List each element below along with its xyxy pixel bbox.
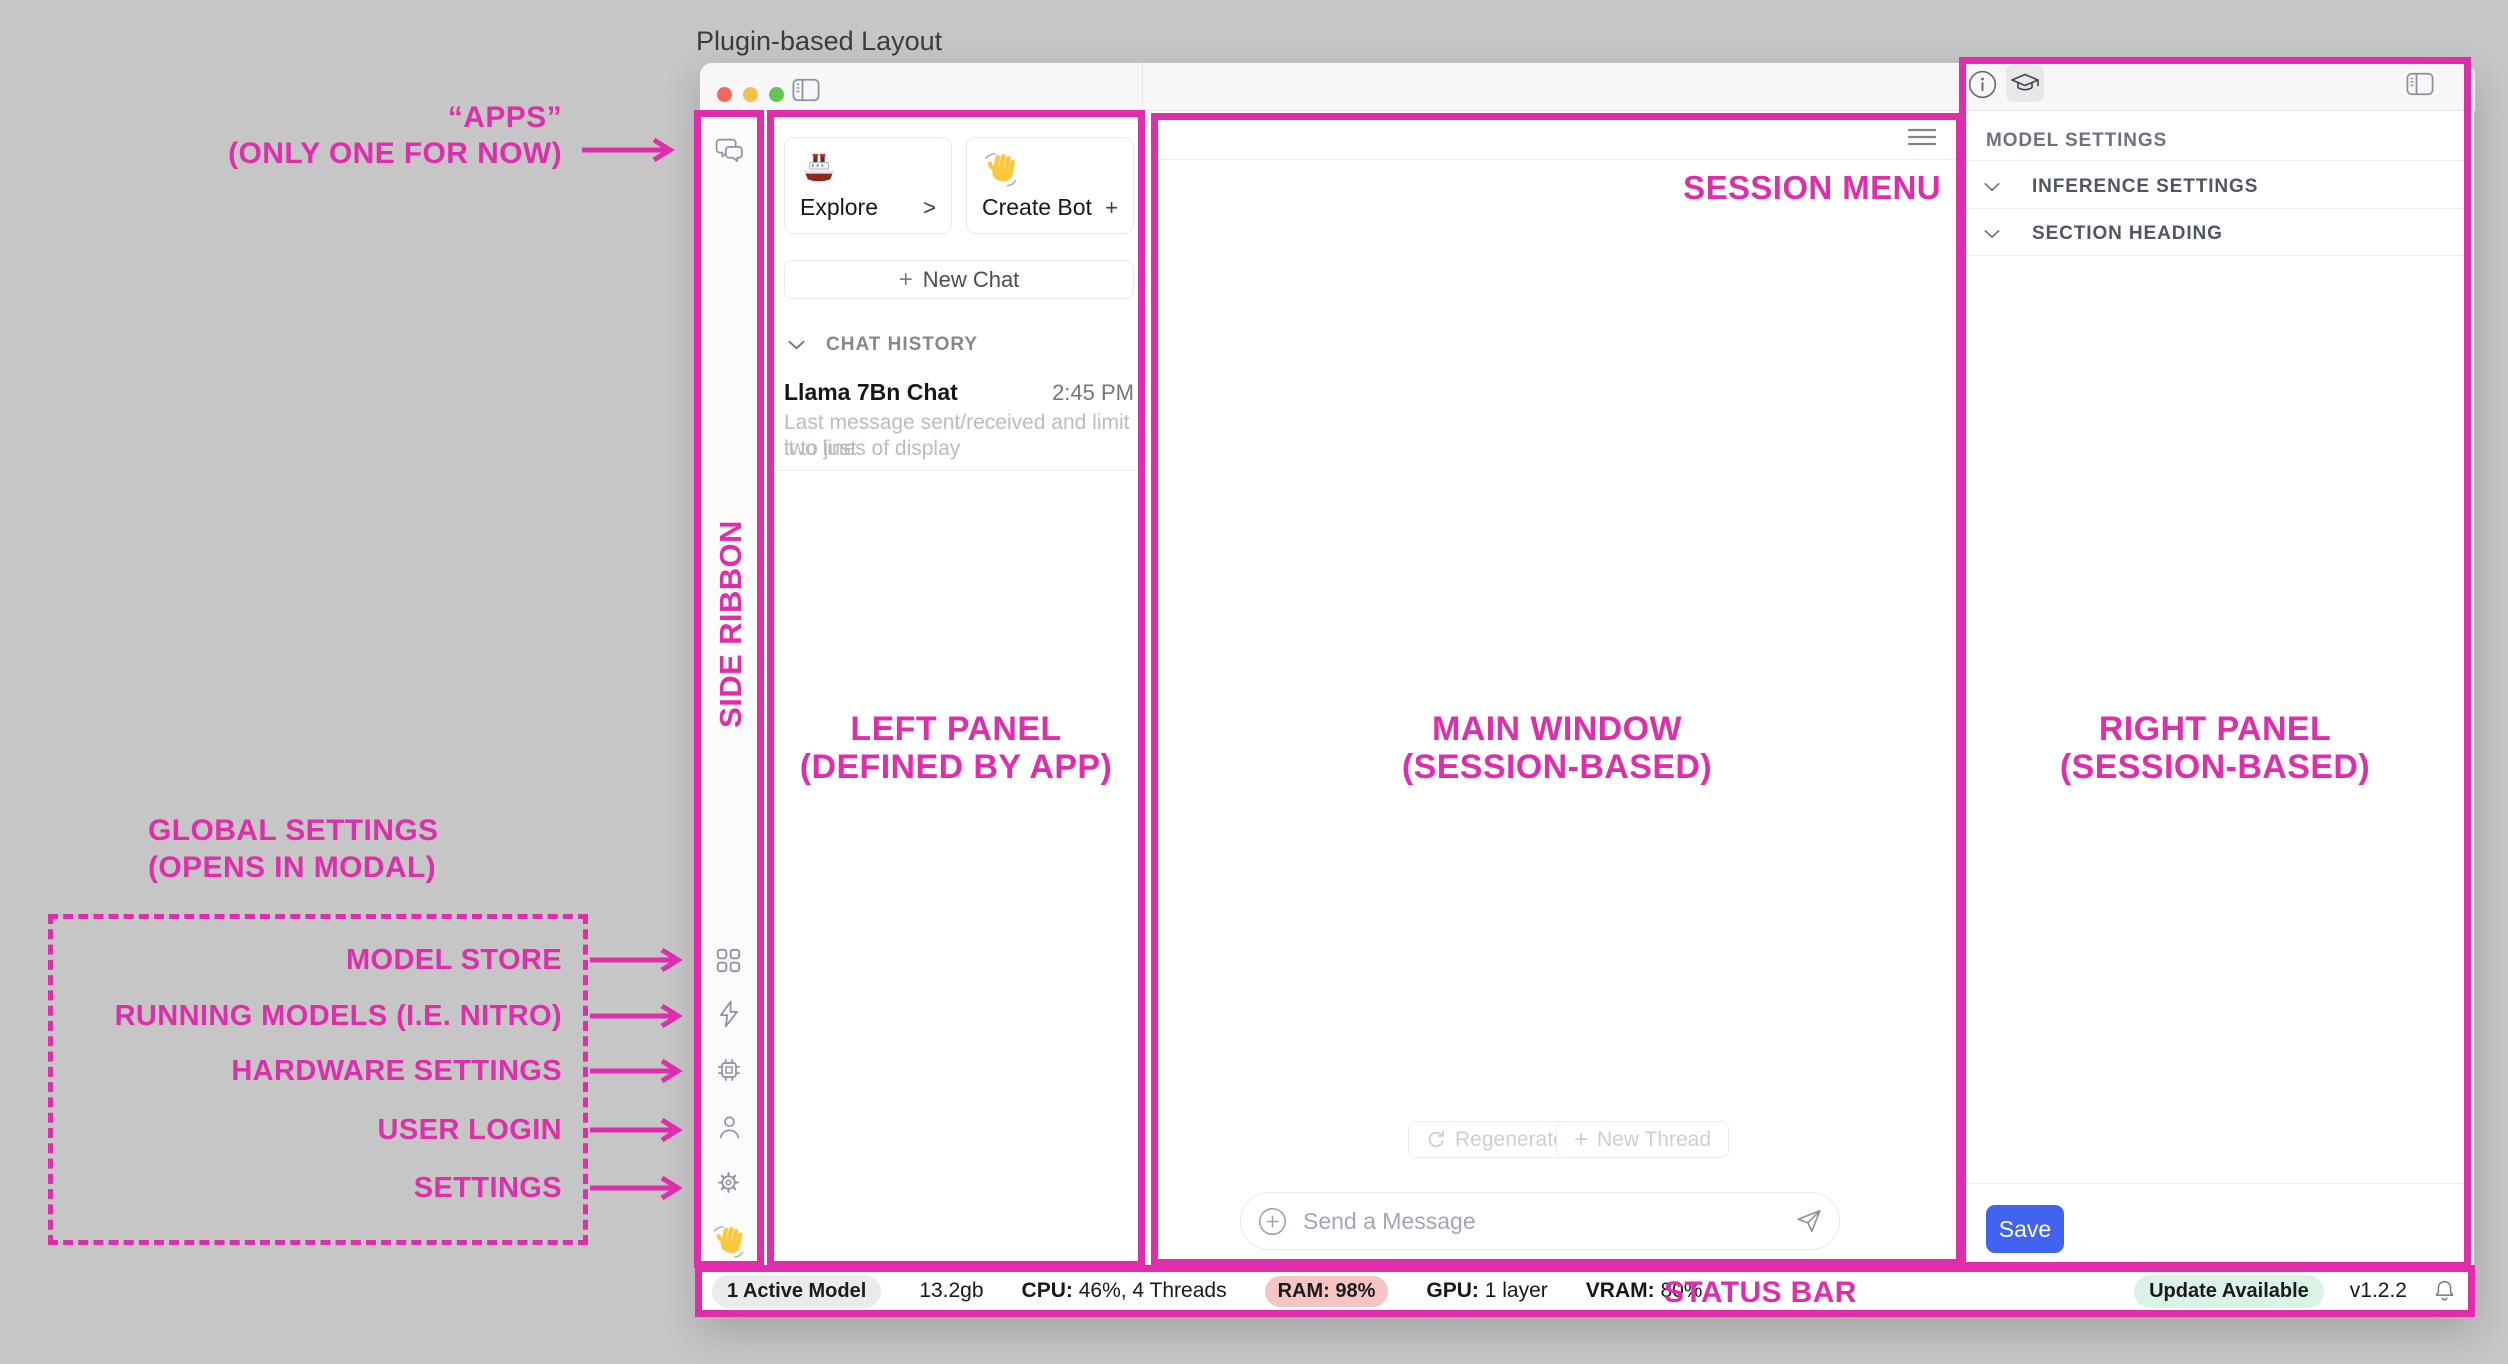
chip-icon <box>715 1056 743 1084</box>
bolt-icon <box>716 1000 742 1028</box>
chat-list-divider <box>774 470 1138 471</box>
settings-annotation: SETTINGS <box>414 1170 562 1206</box>
new-chat-label: New Chat <box>923 267 1020 293</box>
inference-settings-collapse[interactable] <box>1984 179 2000 197</box>
refresh-icon <box>1426 1130 1446 1150</box>
chat-item-preview-line2: two lines of display <box>784 436 960 462</box>
close-window-button[interactable] <box>717 87 732 102</box>
status-bar-right: Update Available v1.2.2 <box>2134 1272 2456 1310</box>
user-login-arrow <box>588 1117 688 1143</box>
running-models-annotation: RUNNING MODELS (I.E. NITRO) <box>115 998 562 1034</box>
side-ribbon-annotation: SIDE RIBBON <box>713 520 749 728</box>
send-icon[interactable] <box>1796 1209 1822 1233</box>
apps-chat-ribbon-item[interactable] <box>714 137 745 170</box>
right-panel-annotation: RIGHT PANEL (SESSION-BASED) <box>2060 710 2370 786</box>
status-bar-annotation: STATUS BAR <box>1664 1275 1857 1311</box>
right-panel-header: MODEL SETTINGS <box>1986 130 2167 152</box>
info-icon <box>1968 70 1997 99</box>
bell-icon[interactable] <box>2433 1278 2456 1304</box>
info-tab[interactable] <box>1968 70 1997 104</box>
model-store-arrow <box>588 947 688 973</box>
app-version: v1.2.2 <box>2350 1279 2407 1303</box>
right-panel-footer-divider <box>1966 1183 2464 1184</box>
running-models-ribbon-item[interactable] <box>716 1000 742 1033</box>
session-menu-annotation: SESSION MENU <box>1683 170 1941 206</box>
chevron-down-icon <box>1984 229 2000 239</box>
right-sidebar-toggle-icon[interactable] <box>2406 72 2434 101</box>
apps-annotation: “APPS” (ONLY ONE FOR NOW) <box>228 100 562 172</box>
wave-emoji <box>711 1224 747 1260</box>
chat-list-item[interactable]: Llama 7Bn Chat 2:45 PM Last message sent… <box>784 377 1134 472</box>
settings-arrow <box>588 1175 688 1201</box>
hardware-settings-arrow <box>588 1058 688 1084</box>
plus-icon: + <box>899 266 913 294</box>
section-heading-label[interactable]: SECTION HEADING <box>2032 223 2223 245</box>
chat-item-time: 2:45 PM <box>1052 380 1134 406</box>
model-store-annotation: MODEL STORE <box>346 942 562 978</box>
active-model-badge: 1 Active Model <box>712 1275 881 1308</box>
chat-history-collapse[interactable] <box>788 337 805 355</box>
chat-bubbles-icon <box>714 137 745 165</box>
model-store-ribbon-item[interactable] <box>715 947 742 979</box>
hardware-settings-annotation: HARDWARE SETTINGS <box>231 1053 562 1089</box>
global-settings-annotation: GLOBAL SETTINGS (OPENS IN MODAL) <box>148 812 438 886</box>
explore-card[interactable]: Explore > <box>784 137 952 234</box>
grid-icon <box>715 947 742 974</box>
running-models-arrow <box>588 1003 688 1029</box>
minimize-window-button[interactable] <box>743 87 758 102</box>
explore-card-label: Explore <box>800 194 878 221</box>
right-panel-divider <box>1966 255 2464 256</box>
model-size: 13.2gb <box>919 1279 983 1303</box>
user-login-annotation: USER LOGIN <box>378 1112 562 1148</box>
new-chat-button[interactable]: + New Chat <box>784 260 1134 299</box>
hamburger-icon <box>1908 127 1936 147</box>
inference-settings-label[interactable]: INFERENCE SETTINGS <box>2032 176 2258 198</box>
main-topbar-divider <box>1158 159 1956 160</box>
titlebar-divider <box>1142 63 1143 111</box>
ram-status-badge: RAM: 98% <box>1265 1276 1389 1307</box>
section-heading-collapse[interactable] <box>1984 226 2000 244</box>
gear-icon <box>715 1169 742 1196</box>
regenerate-label: Regenerate <box>1455 1128 1565 1152</box>
main-window-annotation: MAIN WINDOW (SESSION-BASED) <box>1402 710 1712 786</box>
save-button[interactable]: Save <box>1986 1205 2064 1253</box>
create-bot-card[interactable]: Create Bot + <box>966 137 1134 234</box>
chat-item-title: Llama 7Bn Chat <box>784 379 958 406</box>
session-menu-button[interactable] <box>1908 127 1936 152</box>
assistant-tab-active[interactable] <box>2006 64 2044 102</box>
zoom-window-button[interactable] <box>769 87 784 102</box>
gpu-status: GPU: 1 layer <box>1426 1279 1547 1303</box>
graduation-cap-icon <box>2010 71 2040 96</box>
page-title: Plugin-based Layout <box>696 26 942 57</box>
hardware-settings-ribbon-item[interactable] <box>715 1056 743 1089</box>
create-bot-card-plus: + <box>1105 195 1118 221</box>
message-input[interactable] <box>1301 1207 1782 1236</box>
wave-ribbon-item[interactable] <box>711 1224 747 1265</box>
plus-icon: + <box>1574 1126 1588 1154</box>
settings-ribbon-item[interactable] <box>715 1169 742 1201</box>
message-composer <box>1240 1192 1840 1250</box>
chevron-down-icon <box>788 340 805 350</box>
left-sidebar-toggle-icon[interactable] <box>792 78 820 107</box>
create-bot-card-label: Create Bot <box>982 194 1092 221</box>
new-thread-button[interactable]: + New Thread <box>1556 1121 1729 1158</box>
chevron-down-icon <box>1984 182 2000 192</box>
person-icon <box>716 1113 743 1141</box>
chat-history-header: CHAT HISTORY <box>826 334 978 356</box>
left-panel-annotation: LEFT PANEL (DEFINED BY APP) <box>800 710 1112 786</box>
status-bar-left: 1 Active Model 13.2gb CPU: 46%, 4 Thread… <box>712 1272 1702 1310</box>
cpu-status: CPU: 46%, 4 Threads <box>1022 1279 1227 1303</box>
apps-arrow <box>580 137 680 163</box>
main-window-outline <box>1151 113 1963 1266</box>
circled-plus-icon[interactable] <box>1258 1207 1287 1236</box>
update-available-badge[interactable]: Update Available <box>2134 1275 2324 1308</box>
right-panel-divider <box>1966 160 2464 161</box>
right-panel-divider <box>1966 208 2464 209</box>
new-thread-label: New Thread <box>1597 1128 1711 1152</box>
explore-card-chevron: > <box>923 195 936 221</box>
ship-emoji <box>800 151 838 189</box>
user-login-ribbon-item[interactable] <box>716 1113 743 1146</box>
wave-emoji <box>982 151 1020 189</box>
